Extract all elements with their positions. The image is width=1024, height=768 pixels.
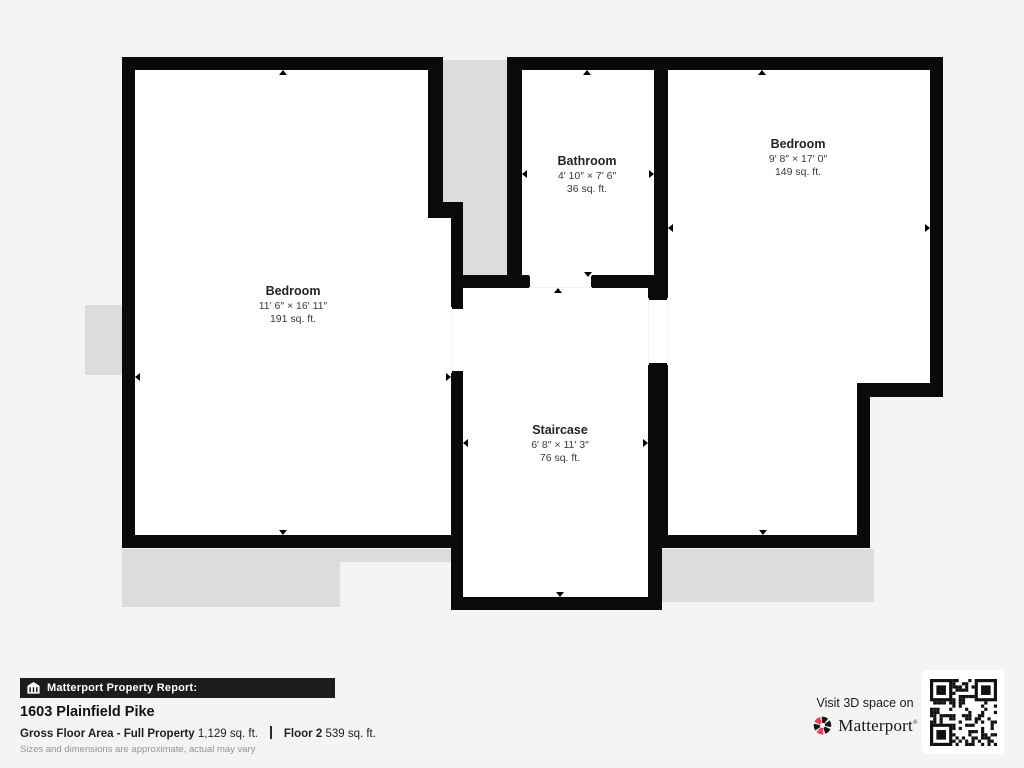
dimension-arrow-down-icon bbox=[279, 530, 287, 535]
floor-plan: Bedroom 11′ 6″ × 16′ 11″ 191 sq. ft. Bat… bbox=[0, 0, 1024, 640]
wall bbox=[930, 57, 943, 397]
wall bbox=[451, 597, 662, 610]
stats-divider bbox=[270, 726, 272, 739]
qr-code bbox=[930, 679, 997, 746]
dimension-arrow-right-icon bbox=[446, 373, 451, 381]
room-dimensions: 11′ 6″ × 16′ 11″ bbox=[193, 300, 393, 313]
floor-value: 539 sq. ft. bbox=[325, 728, 376, 740]
room-name: Bathroom bbox=[507, 154, 667, 169]
room-name: Bedroom bbox=[193, 284, 393, 299]
wall bbox=[507, 57, 943, 70]
matterport-wordmark: Matterport® bbox=[838, 716, 917, 736]
room-name: Bedroom bbox=[698, 137, 898, 152]
wall bbox=[122, 535, 463, 548]
disclaimer-text: Sizes and dimensions are approximate, ac… bbox=[20, 744, 256, 755]
room-bedroom-right-floor bbox=[668, 383, 857, 535]
qr-code-card bbox=[922, 670, 1004, 754]
room-label-bedroom-left: Bedroom 11′ 6″ × 16′ 11″ 191 sq. ft. bbox=[193, 284, 393, 326]
door-opening bbox=[452, 307, 463, 373]
dimension-arrow-down-icon bbox=[556, 592, 564, 597]
exterior-area bbox=[340, 549, 453, 562]
dimension-arrow-up-icon bbox=[758, 70, 766, 75]
wall bbox=[648, 275, 668, 298]
exterior-area bbox=[122, 549, 340, 607]
dimension-arrow-left-icon bbox=[135, 373, 140, 381]
wall bbox=[451, 373, 463, 610]
wall bbox=[428, 57, 443, 208]
room-name: Staircase bbox=[470, 423, 650, 438]
room-area: 76 sq. ft. bbox=[470, 452, 650, 465]
wall bbox=[451, 275, 529, 288]
floor-area-stats: Gross Floor Area - Full Property 1,129 s… bbox=[20, 726, 376, 740]
gross-floor-area-label: Gross Floor Area - Full Property bbox=[20, 728, 195, 740]
room-dimensions: 6′ 8″ × 11′ 3″ bbox=[470, 439, 650, 452]
wall bbox=[122, 57, 443, 70]
room-label-bedroom-right: Bedroom 9′ 8″ × 17′ 0″ 149 sq. ft. bbox=[698, 137, 898, 179]
dimension-arrow-down-icon bbox=[584, 272, 592, 277]
room-dimensions: 9′ 8″ × 17′ 0″ bbox=[698, 153, 898, 166]
dimension-arrow-up-icon bbox=[279, 70, 287, 75]
dimension-arrow-left-icon bbox=[668, 224, 673, 232]
exterior-area bbox=[85, 305, 123, 375]
floor-label: Floor 2 bbox=[284, 728, 322, 740]
dimension-arrow-down-icon bbox=[759, 530, 767, 535]
dimension-arrow-left-icon bbox=[463, 439, 468, 447]
room-bedroom-right-floor bbox=[668, 70, 930, 383]
dimension-arrow-up-icon bbox=[554, 288, 562, 293]
promo-block: Visit 3D space on Matterport® bbox=[800, 696, 930, 736]
exterior-area bbox=[662, 549, 874, 602]
report-bar-label: Matterport Property Report: bbox=[47, 682, 197, 694]
wall bbox=[648, 535, 870, 548]
door-opening bbox=[649, 298, 667, 365]
room-dimensions: 4′ 10″ × 7′ 6″ bbox=[507, 170, 667, 183]
property-address: 1603 Plainfield Pike bbox=[20, 704, 155, 720]
wall bbox=[648, 365, 668, 548]
door-opening bbox=[528, 276, 593, 287]
room-area: 149 sq. ft. bbox=[698, 166, 898, 179]
room-label-bathroom: Bathroom 4′ 10″ × 7′ 6″ 36 sq. ft. bbox=[507, 154, 667, 196]
room-area: 36 sq. ft. bbox=[507, 183, 667, 196]
matterport-logo-icon bbox=[812, 715, 833, 736]
exterior-area bbox=[442, 60, 508, 208]
wall bbox=[451, 202, 463, 307]
wall bbox=[857, 383, 870, 548]
matterport-brand-row: Matterport® bbox=[800, 715, 930, 736]
room-area: 191 sq. ft. bbox=[193, 313, 393, 326]
report-header-bar: Matterport Property Report: bbox=[20, 678, 335, 698]
wall bbox=[122, 57, 135, 548]
dimension-arrow-up-icon bbox=[583, 70, 591, 75]
visit-3d-text: Visit 3D space on bbox=[800, 696, 930, 710]
room-label-staircase: Staircase 6′ 8″ × 11′ 3″ 76 sq. ft. bbox=[470, 423, 650, 465]
dimension-arrow-right-icon bbox=[925, 224, 930, 232]
gross-floor-area-value: 1,129 sq. ft. bbox=[198, 728, 258, 740]
registered-mark: ® bbox=[913, 720, 918, 726]
house-icon bbox=[27, 682, 40, 694]
